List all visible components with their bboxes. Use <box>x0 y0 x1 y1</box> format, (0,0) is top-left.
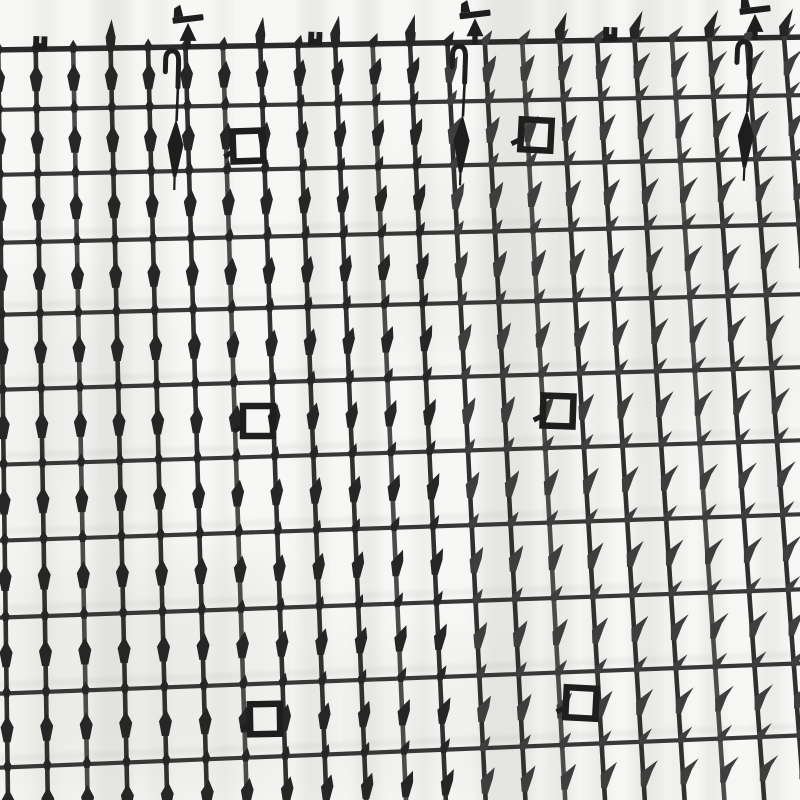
spike-mat-image <box>0 0 800 800</box>
product-photo <box>0 0 800 800</box>
